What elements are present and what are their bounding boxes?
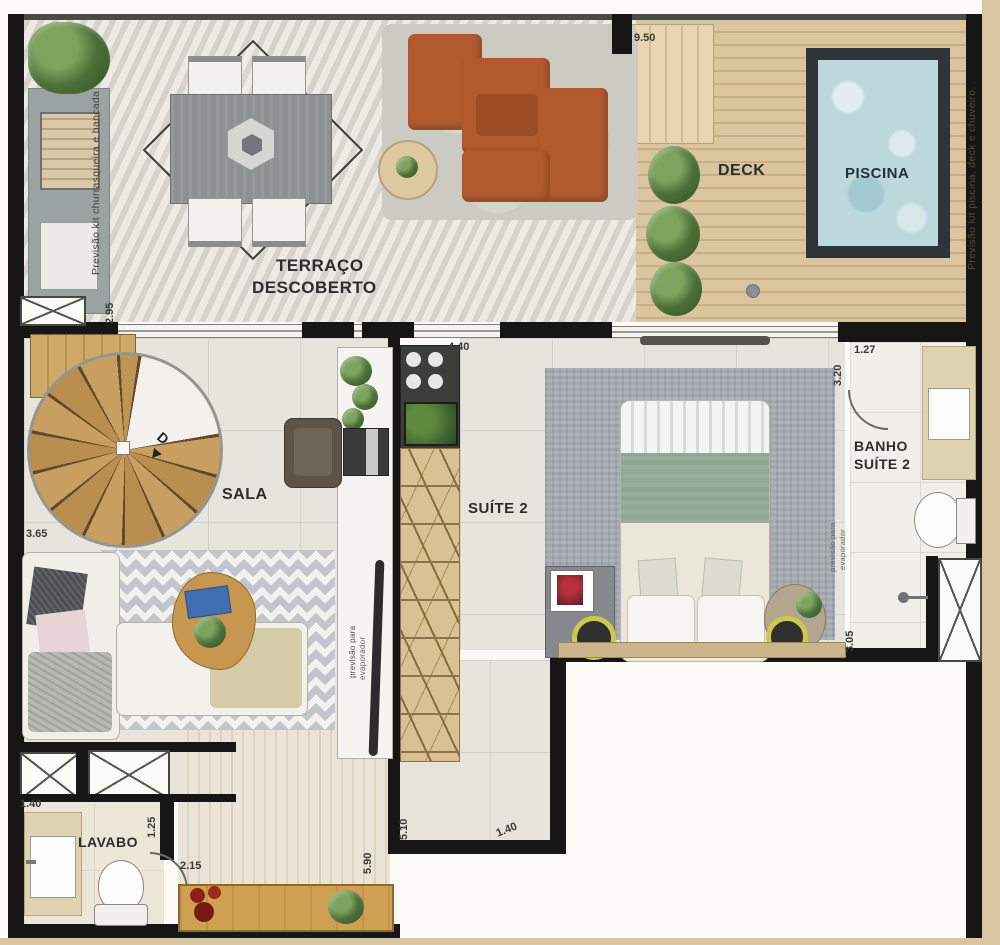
plant-icon — [646, 206, 700, 262]
banho-label-line1: BANHO — [854, 438, 908, 454]
lavabo-label: LAVABO — [78, 834, 138, 850]
terrace-sofa-module — [462, 150, 550, 202]
dim-banho-entry: 1.27 — [854, 344, 875, 356]
burner-icon — [428, 374, 443, 389]
plant-icon — [796, 592, 822, 618]
pool-label: PISCINA — [845, 165, 909, 182]
shaft-box — [20, 752, 80, 800]
lavabo-right-wall — [160, 798, 174, 860]
burner-icon — [428, 352, 443, 367]
burner-icon — [406, 374, 421, 389]
dim-deck-width: 9.50 — [634, 32, 655, 44]
left-margin-note: Previsão kit churrasqueira e bancada — [90, 55, 102, 275]
bottom-margin-strip — [0, 938, 1000, 945]
bed-foot-bench — [621, 401, 769, 453]
bed-quilt — [621, 453, 769, 523]
corridor-bottom-wall — [390, 840, 566, 854]
dining-chair — [252, 198, 306, 247]
art-frame-print — [557, 575, 583, 605]
deck-label: DECK — [718, 162, 765, 180]
dim-lavabo-width: 1.40 — [20, 798, 41, 810]
suite-bench — [558, 642, 846, 658]
suite2-label: SUÍTE 2 — [468, 500, 528, 517]
lavabo-wall — [76, 750, 88, 796]
armchair-seat — [294, 428, 332, 476]
plant-icon — [340, 356, 372, 386]
plant-icon — [648, 146, 700, 204]
shower-box — [938, 558, 982, 662]
toilet-tank-icon — [956, 498, 976, 544]
plant-icon — [194, 616, 226, 648]
plant-icon — [342, 408, 364, 430]
banho-shower-wall — [926, 556, 938, 660]
toilet-tank-icon — [94, 904, 148, 926]
shaft-box — [88, 750, 170, 800]
dim-lavabo-depth: 1.25 — [146, 798, 158, 838]
banho-label-line2: SUÍTE 2 — [854, 456, 910, 472]
right-margin-note: Previsão kit piscina, deck e chuveiro. — [966, 40, 978, 270]
suite-bed — [620, 400, 770, 662]
art-frame-icon — [550, 570, 594, 612]
bowl-icon — [190, 888, 205, 903]
sala-label: SALA — [222, 486, 268, 504]
corridor-right-wall — [550, 648, 566, 848]
terrace-wall — [302, 322, 354, 338]
island-prevision-note: previsão para — [348, 538, 357, 678]
bowl-icon — [208, 886, 221, 899]
wall-pier — [612, 14, 632, 54]
toilet-icon — [914, 492, 962, 548]
suite-prevision-note: previsão para — [828, 462, 837, 572]
shower-point-icon — [746, 284, 760, 298]
dim-corridor-length: 5.10 — [398, 800, 410, 840]
right-margin-strip — [982, 0, 1000, 945]
faucet-icon — [26, 860, 36, 864]
coffee-machine-icon — [343, 428, 389, 476]
dim-banho-lower: 3.05 — [844, 612, 856, 652]
terrace-wall — [500, 322, 612, 338]
suite-prevision-note2: evaporador — [838, 470, 847, 570]
plant-icon — [650, 262, 702, 316]
floor-plan: D previsão para evaporador — [0, 0, 1000, 945]
dim-sala-width: 3.65 — [26, 528, 47, 540]
shower-arm-icon — [906, 596, 928, 599]
suite-wardrobe — [400, 448, 460, 762]
bowl-icon — [194, 902, 214, 922]
lavabo-wall — [8, 794, 236, 802]
island-prevision-note2: evaporador — [358, 560, 367, 680]
outer-wall-left — [8, 14, 24, 330]
sofa-blanket — [28, 652, 112, 732]
outer-wall-top — [8, 14, 972, 20]
terrace-label-line1: TERRAÇO — [276, 256, 364, 276]
curtain — [640, 336, 770, 345]
stair-hub-icon — [116, 441, 130, 455]
burner-icon — [406, 352, 421, 367]
banho-sink-icon — [928, 388, 970, 440]
banho-top-wall — [838, 322, 982, 342]
herb-planter-icon — [404, 402, 458, 446]
sliding-door — [118, 324, 302, 338]
bed-cushion — [638, 558, 679, 601]
plant-icon — [328, 890, 364, 924]
terrace-sofa-cushion — [476, 94, 538, 136]
terrace-label-line2: DESCOBERTO — [252, 278, 377, 298]
dim-banho-length: 3.20 — [832, 346, 844, 386]
plant-icon — [396, 156, 418, 178]
lavabo-sink-icon — [30, 836, 76, 898]
shaft-box — [20, 296, 86, 326]
dim-sala-opening: 2.95 — [104, 284, 116, 324]
dim-hall-length: 5.90 — [362, 834, 374, 874]
pool-water — [818, 60, 938, 246]
dim-hall-width: 2.15 — [180, 860, 201, 872]
dining-chair — [188, 198, 242, 247]
dim-suite-width: 4.40 — [448, 341, 469, 353]
plant-icon — [352, 384, 378, 410]
